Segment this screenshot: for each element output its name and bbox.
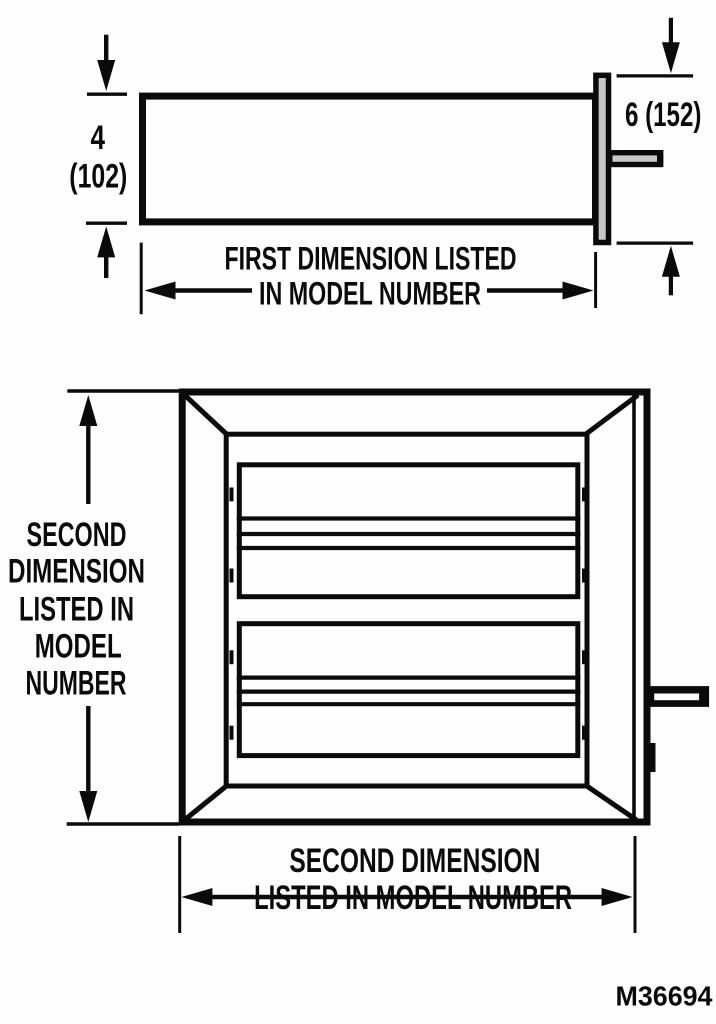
svg-text:MODEL: MODEL [35,628,122,666]
svg-text:DIMENSION: DIMENSION [8,553,145,591]
svg-text:(102): (102) [69,158,127,196]
svg-text:IN MODEL NUMBER: IN MODEL NUMBER [259,275,481,311]
svg-text:M36694: M36694 [616,981,714,1012]
svg-text:NUMBER: NUMBER [26,664,127,702]
svg-text:LISTED IN: LISTED IN [19,591,134,629]
svg-text:6 (152): 6 (152) [625,96,702,134]
svg-text:4: 4 [91,119,106,157]
svg-text:SECOND: SECOND [27,516,127,554]
svg-text:SECOND DIMENSION: SECOND DIMENSION [289,842,540,880]
svg-text:FIRST DIMENSION LISTED: FIRST DIMENSION LISTED [225,241,517,277]
